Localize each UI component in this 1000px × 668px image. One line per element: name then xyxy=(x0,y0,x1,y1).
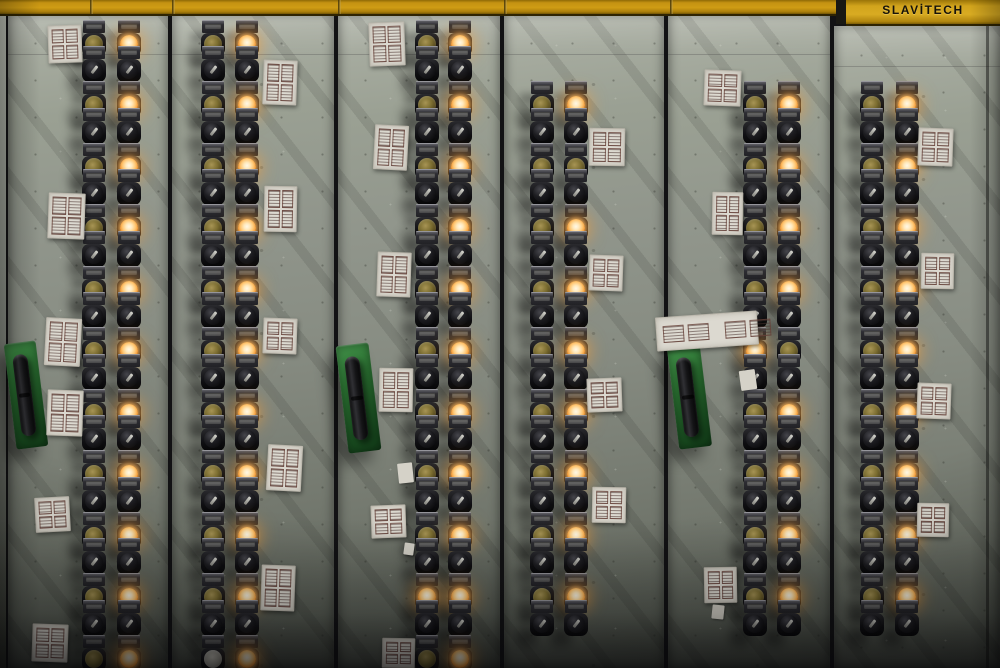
selector-switch[interactable] xyxy=(234,231,260,269)
lamp-housing xyxy=(530,182,554,205)
lamp-housing xyxy=(201,182,225,205)
label-text-block xyxy=(281,64,294,82)
label-text-block xyxy=(593,274,605,287)
label-plate xyxy=(896,512,918,525)
label-text-block xyxy=(281,210,293,228)
switch-knob xyxy=(238,430,256,448)
selector-switch[interactable] xyxy=(776,231,802,269)
label-text-block xyxy=(607,259,619,272)
switch-knob xyxy=(898,307,916,325)
instruction-label xyxy=(712,192,744,236)
label-plate xyxy=(449,46,471,59)
selector-switch[interactable] xyxy=(234,108,260,146)
selector-switch[interactable] xyxy=(563,415,589,453)
selector-switch[interactable] xyxy=(894,108,920,146)
lamp-housing xyxy=(82,613,106,636)
switch-knob xyxy=(533,307,551,325)
label-plate xyxy=(861,81,883,94)
lamp-housing xyxy=(564,121,588,144)
selector-switch[interactable] xyxy=(859,292,885,330)
instruction-label xyxy=(586,377,622,412)
selector-switch[interactable] xyxy=(414,46,440,84)
label-plate xyxy=(83,600,105,613)
label-plate xyxy=(861,354,883,367)
label-plate xyxy=(416,204,438,217)
label-plate xyxy=(778,143,800,156)
switch-knob xyxy=(567,246,585,264)
switch-knob xyxy=(204,369,222,387)
selector-switch[interactable] xyxy=(234,292,260,330)
switch-knob xyxy=(746,123,764,141)
selector-switch[interactable] xyxy=(742,415,768,453)
lamp-housing xyxy=(117,648,141,668)
label-plate xyxy=(236,46,258,59)
selector-switch[interactable] xyxy=(234,46,260,84)
label-plate xyxy=(896,573,918,586)
label-plate xyxy=(118,169,140,182)
lamp-housing xyxy=(564,551,588,574)
lamp-housing xyxy=(448,428,472,451)
lamp-housing xyxy=(743,490,767,513)
label-plate xyxy=(83,266,105,279)
switch-knob xyxy=(238,184,256,202)
selector-switch[interactable] xyxy=(529,169,555,207)
lamp-housing xyxy=(415,551,439,574)
label-plate xyxy=(236,600,258,613)
selector-switch[interactable] xyxy=(116,292,142,330)
lamp-housing xyxy=(530,490,554,513)
switch-knob xyxy=(567,184,585,202)
selector-switch[interactable] xyxy=(894,292,920,330)
label-plate xyxy=(744,389,766,402)
selector-switch[interactable] xyxy=(776,415,802,453)
selector-switch[interactable] xyxy=(776,477,802,515)
lamp-housing xyxy=(201,428,225,451)
lamp-housing xyxy=(530,428,554,451)
selector-switch[interactable] xyxy=(116,169,142,207)
label-plate xyxy=(744,204,766,217)
lamp-housing xyxy=(415,648,439,668)
lamp-housing xyxy=(895,613,919,636)
selector-switch[interactable] xyxy=(859,415,885,453)
selector-switch[interactable] xyxy=(894,600,920,638)
selector-switch[interactable] xyxy=(116,415,142,453)
switch-knob xyxy=(238,307,256,325)
selector-switch[interactable] xyxy=(529,108,555,146)
label-text-block xyxy=(381,256,394,274)
label-text-block xyxy=(281,337,293,350)
label-plate xyxy=(861,450,883,463)
selector-switch[interactable] xyxy=(81,415,107,453)
label-text-block xyxy=(65,29,77,43)
lamp-housing xyxy=(82,305,106,328)
label-plate xyxy=(531,292,553,305)
label-text-block xyxy=(35,644,48,658)
switch-knob xyxy=(451,369,469,387)
lamp-housing xyxy=(448,648,472,668)
lamp-housing xyxy=(235,305,259,328)
selector-switch[interactable] xyxy=(742,108,768,146)
label-text-block xyxy=(286,449,299,468)
label-text-block xyxy=(400,642,412,652)
switch-knob xyxy=(238,553,256,571)
indicator-lamp-lit xyxy=(447,635,473,668)
label-plate xyxy=(778,450,800,463)
trim-seam xyxy=(338,0,341,14)
label-plate xyxy=(449,108,471,121)
selector-switch[interactable] xyxy=(742,477,768,515)
switch-knob xyxy=(120,492,138,510)
lamp-housing xyxy=(82,648,106,668)
label-text-block xyxy=(716,196,727,213)
label-plate xyxy=(565,143,587,156)
lamp-housing xyxy=(743,121,767,144)
selector-switch[interactable] xyxy=(742,538,768,576)
switch-knob xyxy=(898,492,916,510)
label-text-block xyxy=(372,26,386,43)
lamp-housing xyxy=(201,551,225,574)
selector-switch[interactable] xyxy=(81,108,107,146)
label-plate xyxy=(236,266,258,279)
selector-switch[interactable] xyxy=(200,600,226,638)
selector-switch[interactable] xyxy=(414,108,440,146)
selector-switch[interactable] xyxy=(414,477,440,515)
lamp-housing xyxy=(895,367,919,390)
selector-switch[interactable] xyxy=(81,538,107,576)
switch-knob xyxy=(863,492,881,510)
selector-switch[interactable] xyxy=(859,169,885,207)
label-plate xyxy=(449,143,471,156)
selector-switch[interactable] xyxy=(200,415,226,453)
lamp-housing xyxy=(895,182,919,205)
label-plate xyxy=(236,81,258,94)
selector-switch[interactable] xyxy=(776,600,802,638)
selector-switch[interactable] xyxy=(529,292,555,330)
selector-switch[interactable] xyxy=(529,231,555,269)
selector-switch[interactable] xyxy=(563,231,589,269)
selector-switch[interactable] xyxy=(776,538,802,576)
selector-switch[interactable] xyxy=(234,415,260,453)
selector-switch[interactable] xyxy=(414,415,440,453)
selector-switch[interactable] xyxy=(894,231,920,269)
switch-knob xyxy=(746,246,764,264)
selector-switch[interactable] xyxy=(116,600,142,638)
selector-switch[interactable] xyxy=(447,538,473,576)
selector-switch[interactable] xyxy=(116,46,142,84)
lamp-housing xyxy=(860,244,884,267)
selector-switch[interactable] xyxy=(414,538,440,576)
label-plate xyxy=(896,600,918,613)
switch-knob xyxy=(746,430,764,448)
switch-knob xyxy=(533,553,551,571)
label-plate xyxy=(236,143,258,156)
lamp-housing xyxy=(235,121,259,144)
switch-knob xyxy=(418,184,436,202)
switch-knob xyxy=(120,246,138,264)
label-text-block xyxy=(268,190,280,208)
selector-switch[interactable] xyxy=(234,354,260,392)
instruction-label xyxy=(917,503,950,538)
selector-switch[interactable] xyxy=(563,169,589,207)
selector-switch[interactable] xyxy=(414,600,440,638)
selector-switch[interactable] xyxy=(116,538,142,576)
label-text-block xyxy=(721,571,733,584)
selector-switch[interactable] xyxy=(447,108,473,146)
label-plate xyxy=(236,327,258,340)
label-plate xyxy=(531,108,553,121)
label-text-block xyxy=(265,569,278,587)
label-text-block xyxy=(399,654,411,664)
label-plate xyxy=(416,538,438,551)
label-plate xyxy=(778,108,800,121)
selector-switch[interactable] xyxy=(859,354,885,392)
selector-switch[interactable] xyxy=(81,354,107,392)
selector-switch[interactable] xyxy=(894,415,920,453)
selector-switch[interactable] xyxy=(200,477,226,515)
instruction-label xyxy=(703,69,741,106)
lamp-housing xyxy=(235,244,259,267)
label-text-block xyxy=(610,506,622,519)
lamp-housing xyxy=(564,182,588,205)
label-plate xyxy=(531,327,553,340)
selector-switch[interactable] xyxy=(529,415,555,453)
selector-switch[interactable] xyxy=(81,231,107,269)
selector-switch[interactable] xyxy=(414,292,440,330)
switch-knob xyxy=(780,553,798,571)
label-plate xyxy=(565,266,587,279)
label-plate xyxy=(861,169,883,182)
lamp-housing xyxy=(201,121,225,144)
lamp-housing xyxy=(860,490,884,513)
label-plate xyxy=(896,292,918,305)
label-plate xyxy=(118,143,140,156)
label-plate xyxy=(744,477,766,490)
selector-switch[interactable] xyxy=(81,292,107,330)
instruction-label xyxy=(44,317,82,367)
switch-knob xyxy=(238,492,256,510)
selector-switch[interactable] xyxy=(859,231,885,269)
label-text-block xyxy=(388,45,402,62)
label-plate xyxy=(236,354,258,367)
selector-switch[interactable] xyxy=(447,354,473,392)
switch-knob xyxy=(120,61,138,79)
lamp-housing xyxy=(82,428,106,451)
selector-switch[interactable] xyxy=(776,108,802,146)
lamp-housing xyxy=(415,121,439,144)
selector-switch[interactable] xyxy=(200,354,226,392)
selector-switch[interactable] xyxy=(447,600,473,638)
selector-switch[interactable] xyxy=(776,292,802,330)
selector-switch[interactable] xyxy=(414,354,440,392)
label-text-block xyxy=(65,414,79,432)
selector-switch[interactable] xyxy=(529,538,555,576)
switch-knob xyxy=(746,492,764,510)
label-text-block xyxy=(708,88,722,101)
lamp-housing xyxy=(860,551,884,574)
lamp-housing xyxy=(235,59,259,82)
selector-switch[interactable] xyxy=(447,231,473,269)
label-text-block xyxy=(939,257,951,270)
lamp-housing xyxy=(117,490,141,513)
selector-switch[interactable] xyxy=(200,169,226,207)
label-text-block xyxy=(52,197,66,215)
lamp-housing xyxy=(201,648,225,668)
label-text-block xyxy=(728,215,739,232)
label-plate xyxy=(236,292,258,305)
selector-switch[interactable] xyxy=(116,354,142,392)
label-plate xyxy=(778,477,800,490)
switch-knob xyxy=(451,615,469,633)
label-text-block xyxy=(394,276,407,294)
lamp-housing xyxy=(777,613,801,636)
selector-switch[interactable] xyxy=(742,169,768,207)
selector-switch[interactable] xyxy=(200,46,226,84)
lamp-housing xyxy=(117,367,141,390)
selector-switch[interactable] xyxy=(414,169,440,207)
selector-switch[interactable] xyxy=(234,538,260,576)
selector-switch[interactable] xyxy=(234,477,260,515)
label-text-block xyxy=(397,372,409,389)
label-plate xyxy=(118,600,140,613)
selector-switch[interactable] xyxy=(116,231,142,269)
label-plate xyxy=(118,635,140,648)
selector-switch[interactable] xyxy=(563,600,589,638)
selector-switch[interactable] xyxy=(200,108,226,146)
switch-knob xyxy=(533,430,551,448)
selector-switch[interactable] xyxy=(894,538,920,576)
lamp-housing xyxy=(415,367,439,390)
label-text-block xyxy=(663,324,685,342)
switch-knob xyxy=(85,184,103,202)
selector-switch[interactable] xyxy=(859,600,885,638)
label-text-block xyxy=(596,491,608,504)
selector-switch[interactable] xyxy=(447,477,473,515)
trim-seam xyxy=(504,0,507,14)
label-plate xyxy=(449,204,471,217)
label-plate xyxy=(118,266,140,279)
instruction-label xyxy=(370,504,406,538)
selector-switch[interactable] xyxy=(529,600,555,638)
selector-switch[interactable] xyxy=(116,108,142,146)
selector-switch[interactable] xyxy=(563,538,589,576)
label-text-block xyxy=(606,396,619,408)
selector-switch[interactable] xyxy=(742,600,768,638)
switch-knob xyxy=(780,369,798,387)
label-plate xyxy=(202,204,224,217)
door-handle[interactable] xyxy=(675,357,700,438)
selector-switch[interactable] xyxy=(447,415,473,453)
selector-switch[interactable] xyxy=(414,231,440,269)
label-text-block xyxy=(936,148,949,162)
selector-switch[interactable] xyxy=(563,108,589,146)
label-text-block xyxy=(54,515,67,528)
label-plate xyxy=(118,204,140,217)
selector-switch[interactable] xyxy=(894,354,920,392)
label-text-block xyxy=(397,391,409,408)
lamp-housing xyxy=(82,551,106,574)
indicator-lamp-lit xyxy=(234,635,260,668)
label-plate xyxy=(83,143,105,156)
label-plate xyxy=(778,81,800,94)
label-plate xyxy=(565,169,587,182)
selector-switch[interactable] xyxy=(563,292,589,330)
selector-switch[interactable] xyxy=(81,46,107,84)
label-plate xyxy=(236,389,258,402)
label-plate xyxy=(565,477,587,490)
lamp-housing xyxy=(860,428,884,451)
selector-switch[interactable] xyxy=(894,169,920,207)
label-text-block xyxy=(51,394,65,412)
label-plate xyxy=(531,266,553,279)
selector-switch[interactable] xyxy=(859,538,885,576)
label-text-block xyxy=(48,342,62,362)
label-text-block xyxy=(51,628,64,642)
selector-switch[interactable] xyxy=(563,354,589,392)
label-plate xyxy=(236,204,258,217)
door-handle[interactable] xyxy=(12,353,37,437)
label-plate xyxy=(83,327,105,340)
label-plate xyxy=(896,389,918,402)
lamp-housing xyxy=(448,59,472,82)
selector-switch[interactable] xyxy=(742,231,768,269)
selector-switch[interactable] xyxy=(563,477,589,515)
label-plate xyxy=(236,169,258,182)
label-plate xyxy=(83,204,105,217)
label-plate xyxy=(449,20,471,33)
label-text-block xyxy=(66,45,78,59)
selector-switch[interactable] xyxy=(447,46,473,84)
selector-switch[interactable] xyxy=(776,354,802,392)
selector-switch[interactable] xyxy=(200,231,226,269)
switch-knob xyxy=(85,553,103,571)
switch-knob xyxy=(533,184,551,202)
label-plate xyxy=(861,143,883,156)
selector-switch[interactable] xyxy=(234,169,260,207)
label-plate xyxy=(118,81,140,94)
selector-switch[interactable] xyxy=(447,292,473,330)
lamp-housing xyxy=(564,490,588,513)
selector-switch[interactable] xyxy=(894,477,920,515)
label-text-block xyxy=(708,586,720,599)
label-plate xyxy=(202,81,224,94)
selector-switch[interactable] xyxy=(529,477,555,515)
selector-switch[interactable] xyxy=(116,477,142,515)
label-plate xyxy=(778,415,800,428)
label-plate xyxy=(861,266,883,279)
selector-switch[interactable] xyxy=(776,169,802,207)
selector-switch[interactable] xyxy=(859,108,885,146)
switch-knob xyxy=(418,246,436,264)
label-plate xyxy=(565,389,587,402)
switch-knob xyxy=(746,615,764,633)
label-plate xyxy=(778,231,800,244)
selector-switch[interactable] xyxy=(234,600,260,638)
selector-switch[interactable] xyxy=(200,538,226,576)
lamp-housing xyxy=(530,367,554,390)
selector-switch[interactable] xyxy=(529,354,555,392)
label-text-block xyxy=(591,382,604,394)
label-plate xyxy=(565,292,587,305)
selector-switch[interactable] xyxy=(447,169,473,207)
door-handle[interactable] xyxy=(344,355,369,440)
selector-switch[interactable] xyxy=(81,600,107,638)
label-plate xyxy=(118,354,140,367)
selector-switch[interactable] xyxy=(859,477,885,515)
selector-switch[interactable] xyxy=(200,292,226,330)
label-plate xyxy=(202,450,224,463)
label-text-block xyxy=(49,321,63,341)
selector-switch[interactable] xyxy=(81,477,107,515)
